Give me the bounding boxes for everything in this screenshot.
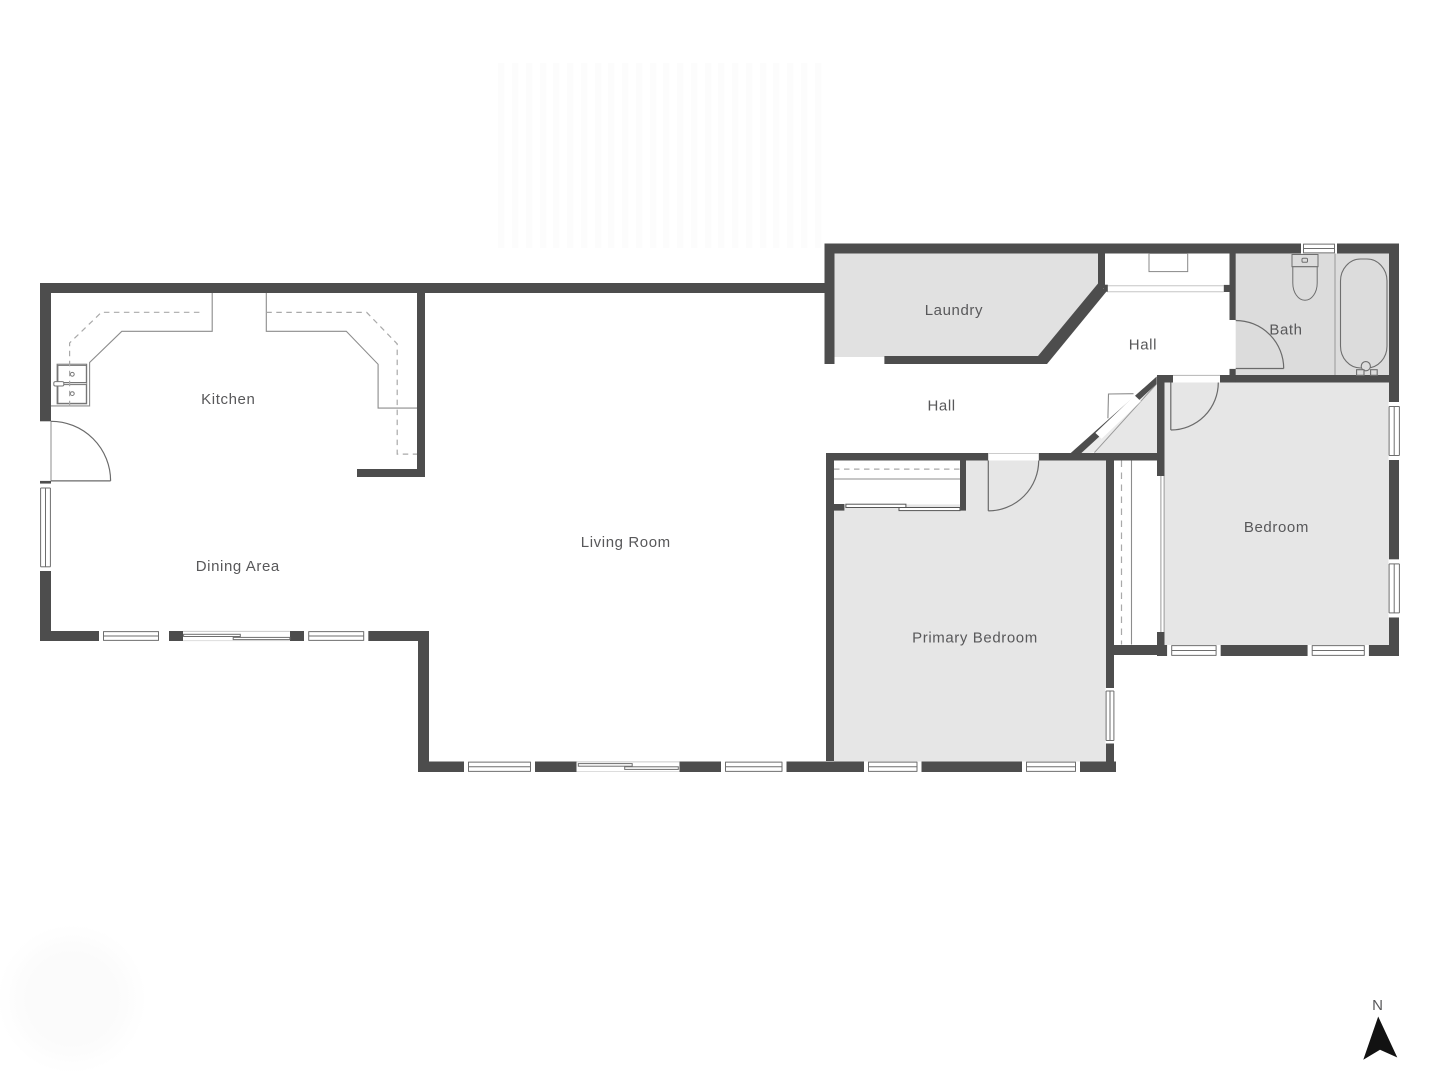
svg-text:Kitchen: Kitchen [201, 391, 255, 408]
svg-text:Bedroom: Bedroom [1244, 519, 1309, 536]
svg-text:Dining Area: Dining Area [196, 558, 280, 575]
svg-text:N: N [1372, 997, 1383, 1014]
svg-text:Primary Bedroom: Primary Bedroom [912, 629, 1038, 646]
svg-text:Laundry: Laundry [925, 302, 983, 319]
svg-text:Living Room: Living Room [581, 534, 671, 551]
svg-text:Hall: Hall [1129, 337, 1157, 354]
svg-text:Bath: Bath [1269, 321, 1302, 338]
svg-text:Hall: Hall [927, 398, 955, 415]
